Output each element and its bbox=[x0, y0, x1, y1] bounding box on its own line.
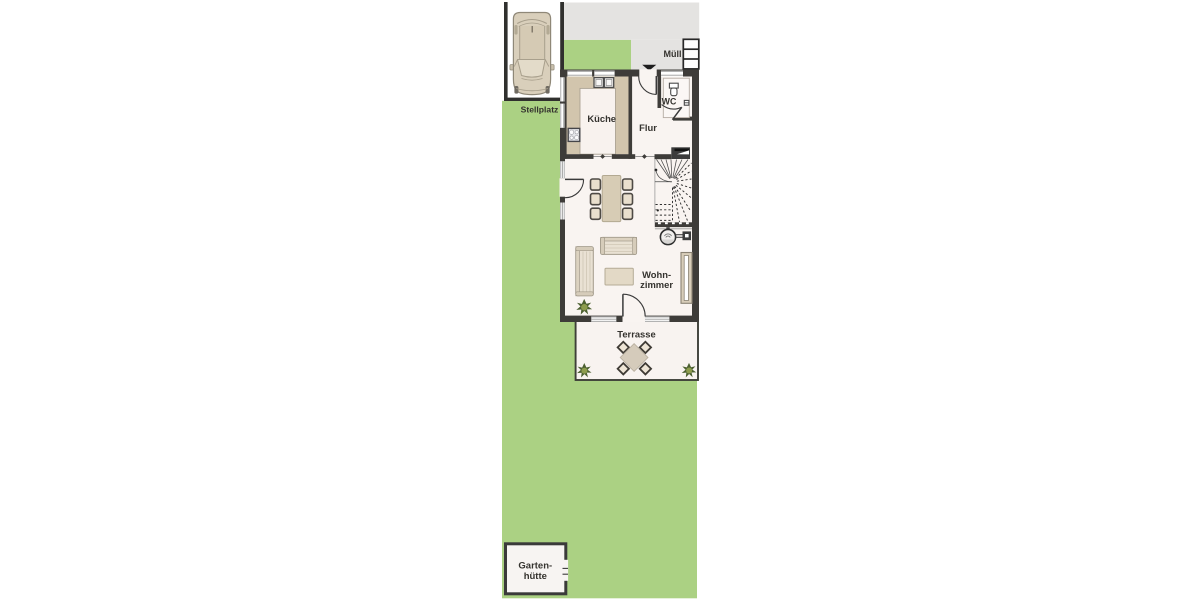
svg-text:zimmer: zimmer bbox=[640, 279, 673, 290]
svg-text:Flur: Flur bbox=[639, 122, 657, 133]
svg-text:Garten-: Garten- bbox=[518, 560, 552, 571]
svg-text:Müll: Müll bbox=[664, 49, 682, 59]
svg-text:WC: WC bbox=[662, 97, 677, 107]
svg-text:Terrasse: Terrasse bbox=[617, 329, 655, 340]
svg-text:Küche: Küche bbox=[587, 113, 616, 124]
svg-text:hütte: hütte bbox=[524, 571, 547, 582]
svg-text:Stellplatz: Stellplatz bbox=[521, 104, 559, 114]
